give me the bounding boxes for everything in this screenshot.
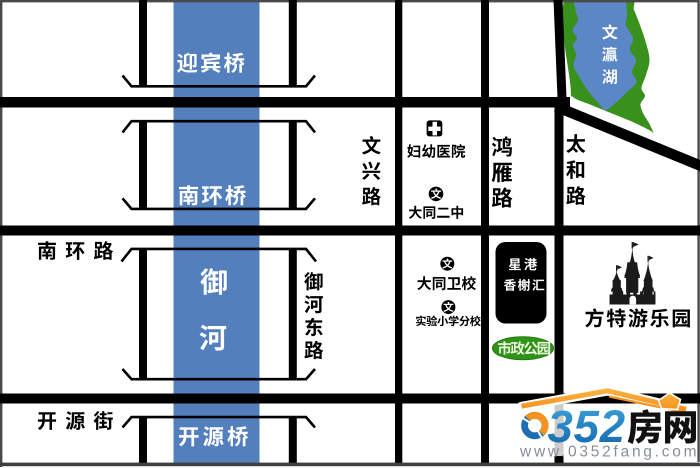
svg-text:www.0352fang.com: www.0352fang.com (519, 444, 699, 461)
